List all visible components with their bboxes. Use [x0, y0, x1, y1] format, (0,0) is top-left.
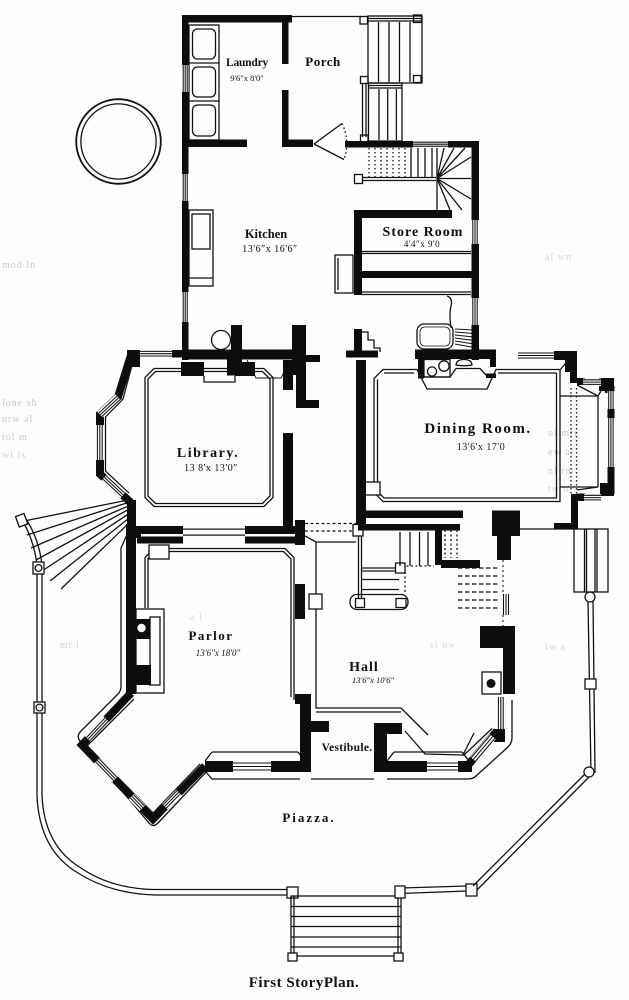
svg-text:13'6″x 16'6″: 13'6″x 16'6″ [242, 244, 297, 255]
svg-text:Vestibule.: Vestibule. [322, 742, 373, 754]
svg-text:Dining Room.: Dining Room. [424, 421, 531, 437]
svg-text:wi ls: wi ls [2, 450, 26, 461]
svg-text:4'4″x 9'0: 4'4″x 9'0 [404, 239, 440, 249]
svg-text:ol mfr: ol mfr [548, 428, 579, 439]
svg-text:13'6″x 18'0″: 13'6″x 18'0″ [196, 648, 241, 658]
svg-text:Laundry: Laundry [226, 57, 269, 69]
svg-text:nl rm: nl rm [548, 466, 574, 477]
svg-text:Kitchen: Kitchen [245, 227, 287, 241]
svg-text:9'6″x 8'0″: 9'6″x 8'0″ [230, 73, 264, 83]
svg-text:13'6″x 10'6″: 13'6″x 10'6″ [352, 675, 395, 685]
svg-text:mod ln: mod ln [2, 260, 36, 271]
svg-text:mt l: mt l [60, 640, 80, 651]
svg-text:Hall: Hall [349, 660, 379, 675]
svg-text:Library.: Library. [177, 446, 239, 461]
svg-text:Porch: Porch [305, 54, 341, 69]
svg-text:Store Room: Store Room [383, 225, 464, 240]
svg-text:13'6'x 17'0: 13'6'x 17'0 [457, 442, 505, 453]
svg-text:tol m: tol m [2, 432, 28, 443]
svg-text:Parlor: Parlor [188, 628, 233, 643]
svg-text:sl ow: sl ow [430, 640, 456, 651]
svg-text:13 8'x 13'0″: 13 8'x 13'0″ [184, 463, 238, 474]
svg-text:lone sh: lone sh [2, 398, 38, 409]
svg-text:First StoryPlan.: First StoryPlan. [249, 975, 360, 991]
svg-text:Piazza.: Piazza. [282, 810, 335, 825]
svg-text:a l: a l [190, 612, 203, 623]
svg-text:tw o: tw o [548, 484, 570, 495]
svg-text:lw a: lw a [545, 642, 566, 653]
svg-text:ew al: ew al [548, 447, 574, 458]
svg-text:urw al: urw al [2, 414, 33, 425]
svg-text:al wn: al wn [545, 252, 572, 263]
